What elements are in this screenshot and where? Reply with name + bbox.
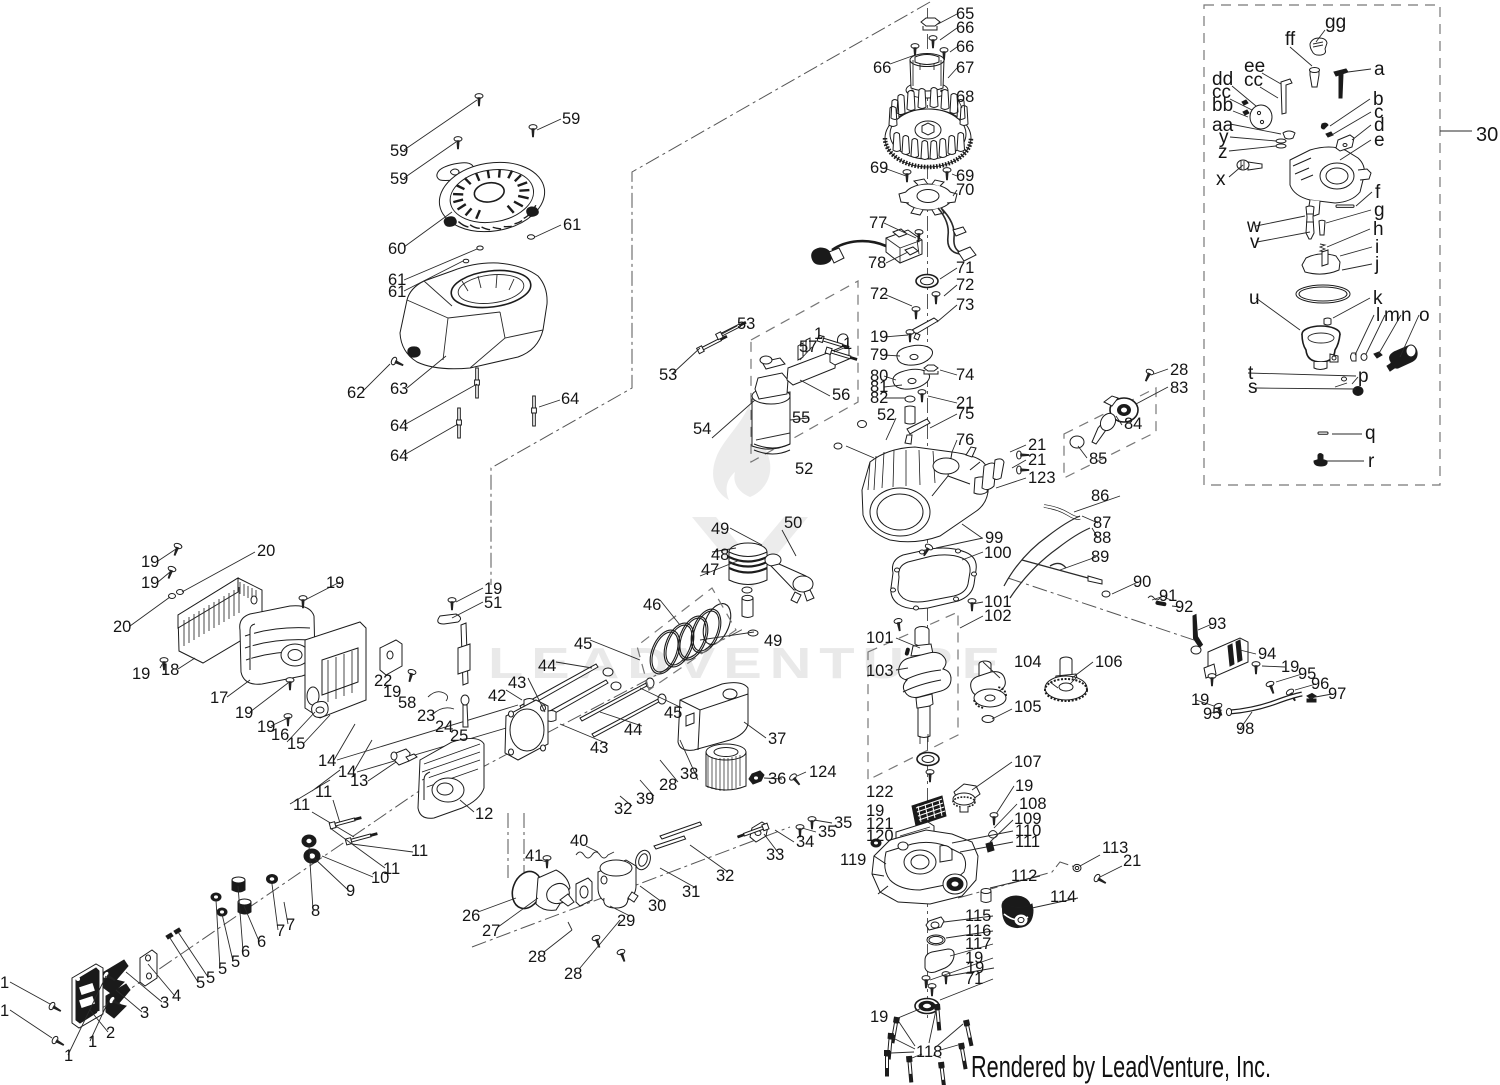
svg-text:76: 76 bbox=[956, 431, 974, 449]
svg-text:95: 95 bbox=[1203, 705, 1221, 723]
svg-text:17: 17 bbox=[210, 689, 228, 707]
svg-text:114: 114 bbox=[1050, 888, 1076, 906]
svg-text:66: 66 bbox=[956, 19, 974, 37]
svg-text:28: 28 bbox=[564, 965, 582, 983]
svg-text:41: 41 bbox=[525, 847, 543, 865]
svg-text:30: 30 bbox=[648, 897, 666, 915]
svg-text:33: 33 bbox=[766, 846, 784, 864]
svg-text:19: 19 bbox=[326, 574, 344, 592]
svg-text:57: 57 bbox=[799, 338, 817, 356]
svg-text:59: 59 bbox=[390, 142, 408, 160]
svg-text:11: 11 bbox=[315, 783, 332, 801]
svg-text:85: 85 bbox=[1089, 450, 1107, 468]
svg-text:11: 11 bbox=[383, 860, 400, 878]
svg-text:66: 66 bbox=[873, 59, 891, 77]
svg-text:107: 107 bbox=[1014, 753, 1042, 771]
svg-text:89: 89 bbox=[1091, 548, 1109, 566]
svg-text:46: 46 bbox=[643, 596, 661, 614]
svg-text:11: 11 bbox=[293, 796, 310, 814]
svg-text:56: 56 bbox=[832, 386, 850, 404]
svg-text:106: 106 bbox=[1095, 653, 1123, 671]
svg-text:19: 19 bbox=[132, 665, 150, 683]
svg-text:53: 53 bbox=[659, 366, 677, 384]
svg-text:84: 84 bbox=[1124, 415, 1142, 433]
svg-text:99: 99 bbox=[985, 529, 1003, 547]
svg-text:29: 29 bbox=[617, 912, 635, 930]
svg-text:u: u bbox=[1249, 288, 1260, 309]
svg-text:94: 94 bbox=[1258, 645, 1276, 663]
svg-text:103: 103 bbox=[866, 662, 894, 680]
svg-text:93: 93 bbox=[1208, 615, 1226, 633]
svg-text:35: 35 bbox=[834, 814, 852, 832]
svg-text:45: 45 bbox=[574, 635, 592, 653]
svg-text:102: 102 bbox=[984, 607, 1012, 625]
svg-text:59: 59 bbox=[390, 170, 408, 188]
svg-text:36: 36 bbox=[768, 770, 786, 788]
svg-text:60: 60 bbox=[388, 240, 406, 258]
svg-text:30: 30 bbox=[1476, 124, 1498, 146]
svg-text:6: 6 bbox=[257, 933, 266, 951]
svg-text:44: 44 bbox=[624, 721, 642, 739]
svg-text:54: 54 bbox=[693, 420, 711, 438]
svg-text:123: 123 bbox=[1028, 469, 1056, 487]
svg-text:52: 52 bbox=[795, 460, 813, 478]
svg-text:1: 1 bbox=[0, 974, 9, 992]
svg-text:l: l bbox=[1376, 305, 1380, 326]
svg-text:p: p bbox=[1358, 366, 1369, 387]
svg-text:20: 20 bbox=[257, 542, 275, 560]
svg-text:101: 101 bbox=[866, 629, 894, 647]
svg-text:49: 49 bbox=[764, 632, 782, 650]
svg-text:28: 28 bbox=[528, 948, 546, 966]
svg-text:122: 122 bbox=[866, 783, 894, 801]
svg-text:34: 34 bbox=[796, 833, 814, 851]
svg-text:112: 112 bbox=[1011, 867, 1037, 885]
svg-text:124: 124 bbox=[809, 763, 837, 781]
svg-text:82: 82 bbox=[870, 389, 888, 407]
svg-text:105: 105 bbox=[1014, 698, 1042, 716]
svg-text:e: e bbox=[1374, 130, 1385, 151]
svg-text:74: 74 bbox=[956, 366, 974, 384]
svg-text:43: 43 bbox=[508, 674, 526, 692]
svg-text:86: 86 bbox=[1091, 487, 1109, 505]
svg-text:96: 96 bbox=[1311, 675, 1329, 693]
svg-text:21: 21 bbox=[1028, 451, 1046, 469]
svg-text:19: 19 bbox=[1015, 777, 1033, 795]
svg-text:71: 71 bbox=[965, 970, 983, 988]
svg-text:j: j bbox=[1374, 254, 1379, 275]
svg-text:120: 120 bbox=[866, 827, 894, 845]
svg-text:1: 1 bbox=[0, 1002, 9, 1020]
svg-text:m: m bbox=[1384, 305, 1400, 326]
svg-text:50: 50 bbox=[784, 514, 802, 532]
svg-text:q: q bbox=[1365, 423, 1376, 444]
svg-text:4: 4 bbox=[172, 987, 181, 1005]
svg-text:64: 64 bbox=[390, 417, 408, 435]
svg-text:1: 1 bbox=[88, 1033, 97, 1051]
svg-text:52: 52 bbox=[877, 406, 895, 424]
svg-text:98: 98 bbox=[1236, 720, 1254, 738]
svg-text:o: o bbox=[1419, 305, 1430, 326]
svg-text:15: 15 bbox=[287, 735, 305, 753]
svg-text:r: r bbox=[1368, 451, 1375, 472]
svg-text:14: 14 bbox=[318, 752, 336, 770]
svg-text:63: 63 bbox=[390, 380, 408, 398]
svg-text:5: 5 bbox=[206, 969, 215, 987]
svg-text:72: 72 bbox=[956, 276, 974, 294]
svg-text:1: 1 bbox=[64, 1047, 73, 1065]
svg-text:72: 72 bbox=[870, 285, 888, 303]
svg-text:z: z bbox=[1218, 142, 1228, 163]
svg-text:n: n bbox=[1401, 305, 1412, 326]
svg-text:71: 71 bbox=[956, 259, 974, 277]
svg-text:gg: gg bbox=[1325, 12, 1346, 33]
svg-text:55: 55 bbox=[792, 409, 810, 427]
svg-text:11: 11 bbox=[411, 842, 428, 860]
svg-text:37: 37 bbox=[768, 730, 786, 748]
svg-text:a: a bbox=[1374, 59, 1385, 80]
svg-text:88: 88 bbox=[1093, 529, 1111, 547]
svg-text:104: 104 bbox=[1014, 653, 1042, 671]
svg-text:28: 28 bbox=[1170, 361, 1188, 379]
svg-text:118: 118 bbox=[916, 1043, 942, 1061]
svg-text:43: 43 bbox=[590, 739, 608, 757]
svg-text:64: 64 bbox=[390, 447, 408, 465]
svg-text:78: 78 bbox=[868, 254, 886, 272]
svg-text:19: 19 bbox=[870, 1008, 888, 1026]
svg-text:3: 3 bbox=[160, 994, 169, 1012]
svg-text:x: x bbox=[1216, 169, 1226, 190]
svg-text:77: 77 bbox=[869, 214, 887, 232]
svg-text:s: s bbox=[1248, 377, 1258, 398]
svg-text:92: 92 bbox=[1175, 598, 1193, 616]
svg-text:90: 90 bbox=[1133, 573, 1151, 591]
svg-text:5: 5 bbox=[196, 974, 205, 992]
svg-text:12: 12 bbox=[475, 805, 493, 823]
svg-text:v: v bbox=[1250, 232, 1260, 253]
svg-text:39: 39 bbox=[636, 790, 654, 808]
svg-text:38: 38 bbox=[680, 765, 698, 783]
svg-text:5: 5 bbox=[218, 960, 227, 978]
svg-text:97: 97 bbox=[1328, 685, 1346, 703]
svg-text:3: 3 bbox=[140, 1004, 149, 1022]
svg-text:48: 48 bbox=[711, 546, 729, 564]
svg-text:73: 73 bbox=[956, 296, 974, 314]
svg-text:68: 68 bbox=[956, 88, 974, 106]
svg-text:70: 70 bbox=[956, 181, 974, 199]
svg-text:51: 51 bbox=[484, 594, 502, 612]
svg-text:26: 26 bbox=[462, 907, 480, 925]
svg-text:9: 9 bbox=[346, 882, 355, 900]
svg-text:21: 21 bbox=[1123, 852, 1141, 870]
svg-text:19: 19 bbox=[1281, 658, 1299, 676]
svg-text:20: 20 bbox=[113, 618, 131, 636]
svg-text:19: 19 bbox=[141, 553, 159, 571]
svg-text:7: 7 bbox=[276, 922, 285, 940]
svg-text:49: 49 bbox=[711, 520, 729, 538]
svg-text:61: 61 bbox=[563, 216, 581, 234]
svg-text:19: 19 bbox=[141, 574, 159, 592]
svg-text:45: 45 bbox=[664, 704, 682, 722]
svg-text:19: 19 bbox=[870, 328, 888, 346]
svg-text:6: 6 bbox=[241, 943, 250, 961]
svg-text:2: 2 bbox=[106, 1024, 115, 1042]
svg-text:67: 67 bbox=[956, 59, 974, 77]
svg-text:58: 58 bbox=[398, 694, 416, 712]
svg-text:g: g bbox=[1374, 200, 1385, 221]
svg-text:32: 32 bbox=[614, 800, 632, 818]
svg-text:cc: cc bbox=[1244, 70, 1263, 91]
svg-text:62: 62 bbox=[347, 384, 365, 402]
svg-text:31: 31 bbox=[682, 883, 700, 901]
svg-text:53: 53 bbox=[737, 315, 755, 333]
svg-text:23: 23 bbox=[417, 707, 435, 725]
svg-text:bb: bb bbox=[1212, 95, 1233, 116]
svg-text:75: 75 bbox=[956, 405, 974, 423]
svg-text:ff: ff bbox=[1285, 29, 1296, 50]
svg-text:79: 79 bbox=[870, 346, 888, 364]
svg-text:59: 59 bbox=[562, 110, 580, 128]
svg-text:40: 40 bbox=[570, 832, 588, 850]
svg-text:28: 28 bbox=[659, 776, 677, 794]
svg-text:27: 27 bbox=[482, 922, 500, 940]
svg-text:1: 1 bbox=[843, 335, 852, 353]
svg-text:69: 69 bbox=[870, 159, 888, 177]
svg-text:Rendered by LeadVenture, Inc.: Rendered by LeadVenture, Inc. bbox=[971, 1049, 1271, 1084]
svg-text:61: 61 bbox=[388, 283, 406, 301]
svg-text:19: 19 bbox=[235, 704, 253, 722]
svg-text:66: 66 bbox=[956, 38, 974, 56]
svg-text:119: 119 bbox=[840, 851, 866, 869]
svg-text:83: 83 bbox=[1170, 379, 1188, 397]
svg-text:44: 44 bbox=[538, 657, 556, 675]
svg-text:32: 32 bbox=[716, 867, 734, 885]
svg-text:42: 42 bbox=[488, 687, 506, 705]
svg-text:13: 13 bbox=[350, 772, 368, 790]
svg-text:25: 25 bbox=[450, 727, 468, 745]
svg-text:18: 18 bbox=[161, 661, 179, 679]
svg-text:111: 111 bbox=[1015, 833, 1040, 851]
svg-text:7: 7 bbox=[286, 916, 295, 934]
svg-text:8: 8 bbox=[311, 902, 320, 920]
svg-text:5: 5 bbox=[231, 953, 240, 971]
svg-text:64: 64 bbox=[561, 390, 579, 408]
